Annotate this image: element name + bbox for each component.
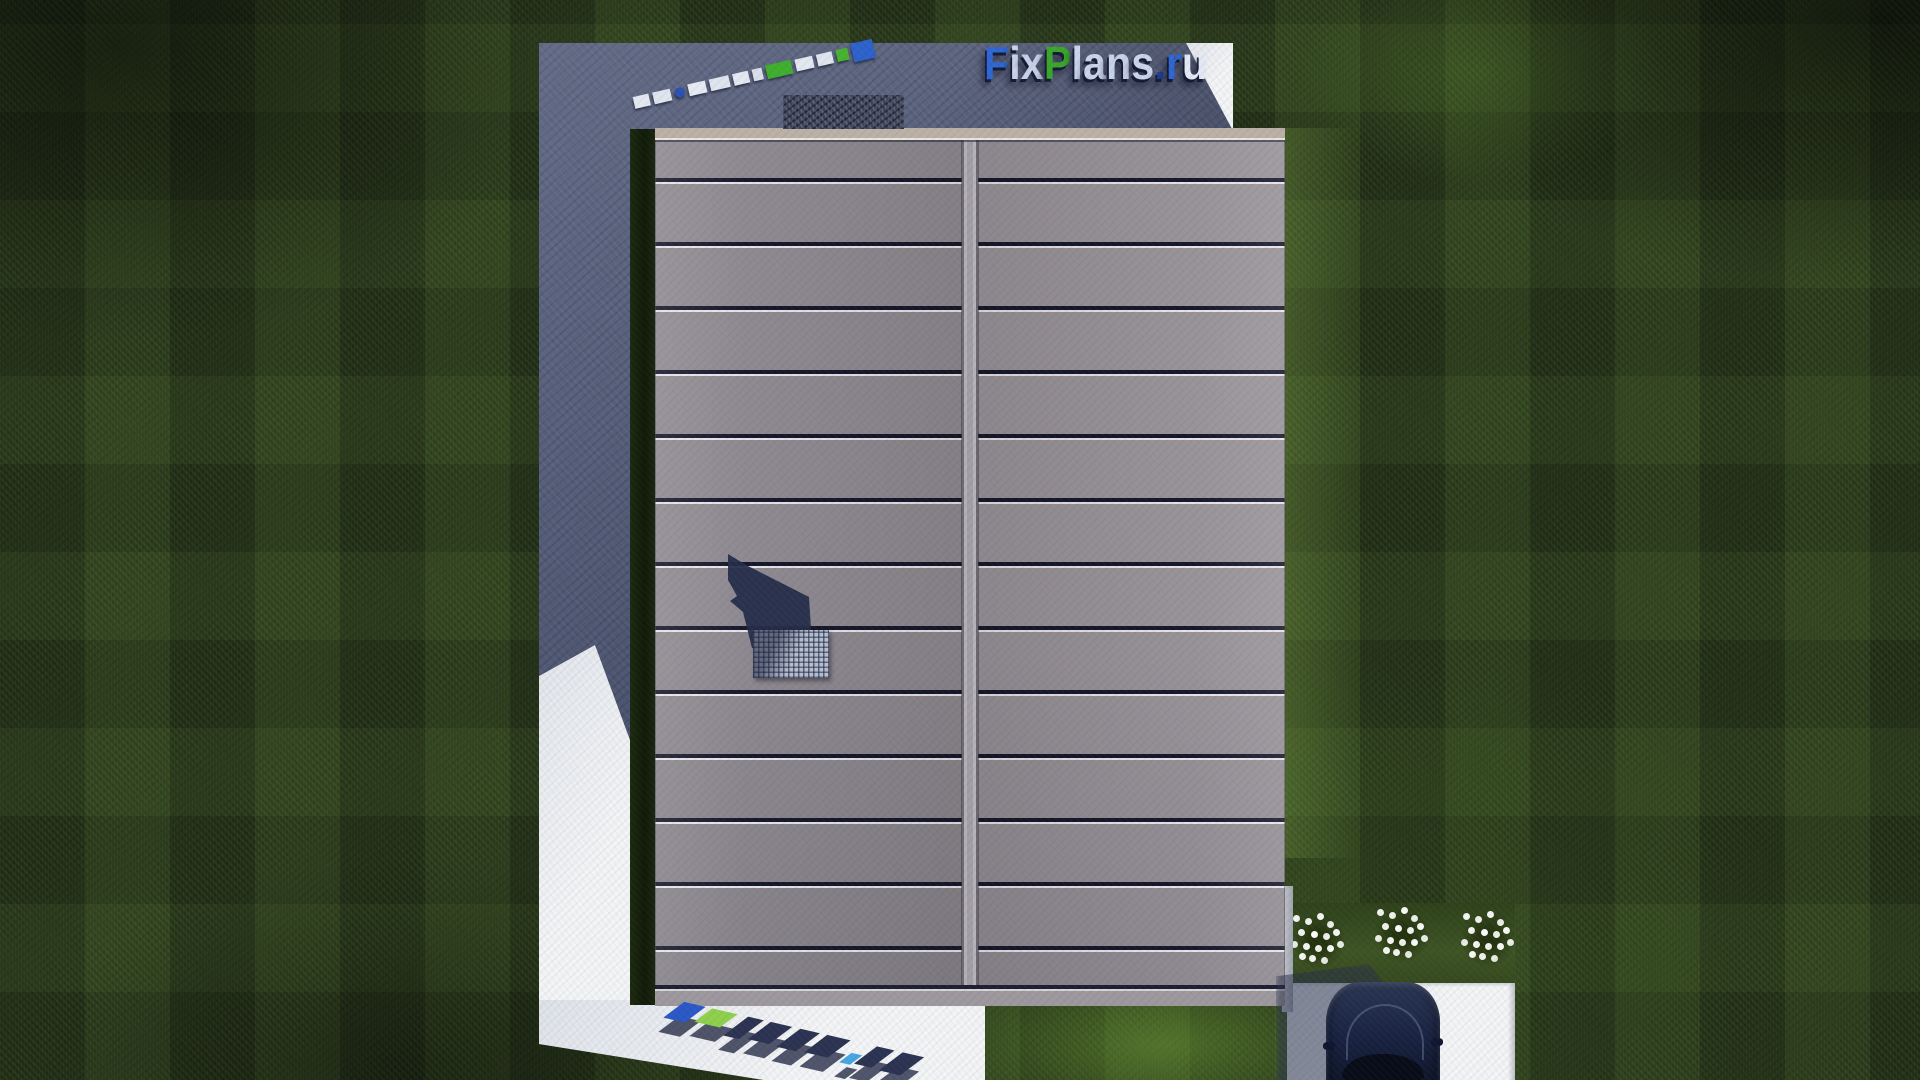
flower-blossoms (1377, 909, 1384, 916)
flower-blossoms (1293, 915, 1300, 922)
logo-letter: a (1083, 37, 1106, 89)
watermark-tile (709, 75, 731, 91)
watermark-tile (633, 94, 651, 109)
chimney-north (783, 95, 904, 129)
fixplans-logo: FixPlans.ru (984, 40, 1207, 86)
watermark-tile (752, 67, 764, 81)
watermark-tile (765, 60, 793, 79)
logo-letter: i (1009, 37, 1021, 89)
logo-letter: x (1021, 37, 1044, 89)
chimney-with-grate (723, 550, 815, 680)
flower-bush (1459, 911, 1517, 967)
roof-fascia-bottom (655, 985, 1285, 1006)
watermark-tile (816, 51, 834, 66)
watermark-tile (850, 38, 876, 61)
watermark-tile (674, 86, 686, 98)
flower-bush (1289, 913, 1347, 969)
render-canvas: FixPlans.ru (0, 0, 1920, 1080)
watermark-tile (652, 89, 672, 105)
watermark-tile (732, 71, 750, 86)
car-hood-seam (1346, 1004, 1424, 1060)
logo-letter: F (984, 37, 1009, 89)
logo-letter: n (1106, 37, 1131, 89)
logo-letter: . (1154, 37, 1166, 89)
chimney-grate (753, 630, 829, 678)
logo-letter: l (1071, 37, 1083, 89)
car-mirror-right (1431, 1038, 1443, 1046)
watermark-tile (835, 48, 849, 62)
roof-slope-right (978, 128, 1285, 1005)
logo-letter: P (1044, 37, 1072, 89)
sunlit-grass-band (1285, 128, 1380, 858)
car-body (1326, 982, 1440, 1080)
grass-strip (630, 129, 656, 1005)
logo-letter: s (1131, 37, 1154, 89)
flower-bush (1373, 907, 1431, 963)
flower-blossoms (1463, 913, 1470, 920)
watermark-tile (687, 81, 707, 97)
watermark-tile (794, 56, 814, 72)
logo-letter: u (1182, 37, 1207, 89)
roof-fascia-top (655, 128, 1285, 142)
parked-car (1318, 982, 1448, 1080)
logo-letter: r (1166, 37, 1182, 89)
car-mirror-left (1323, 1042, 1335, 1050)
roof-ridge (962, 128, 978, 1005)
